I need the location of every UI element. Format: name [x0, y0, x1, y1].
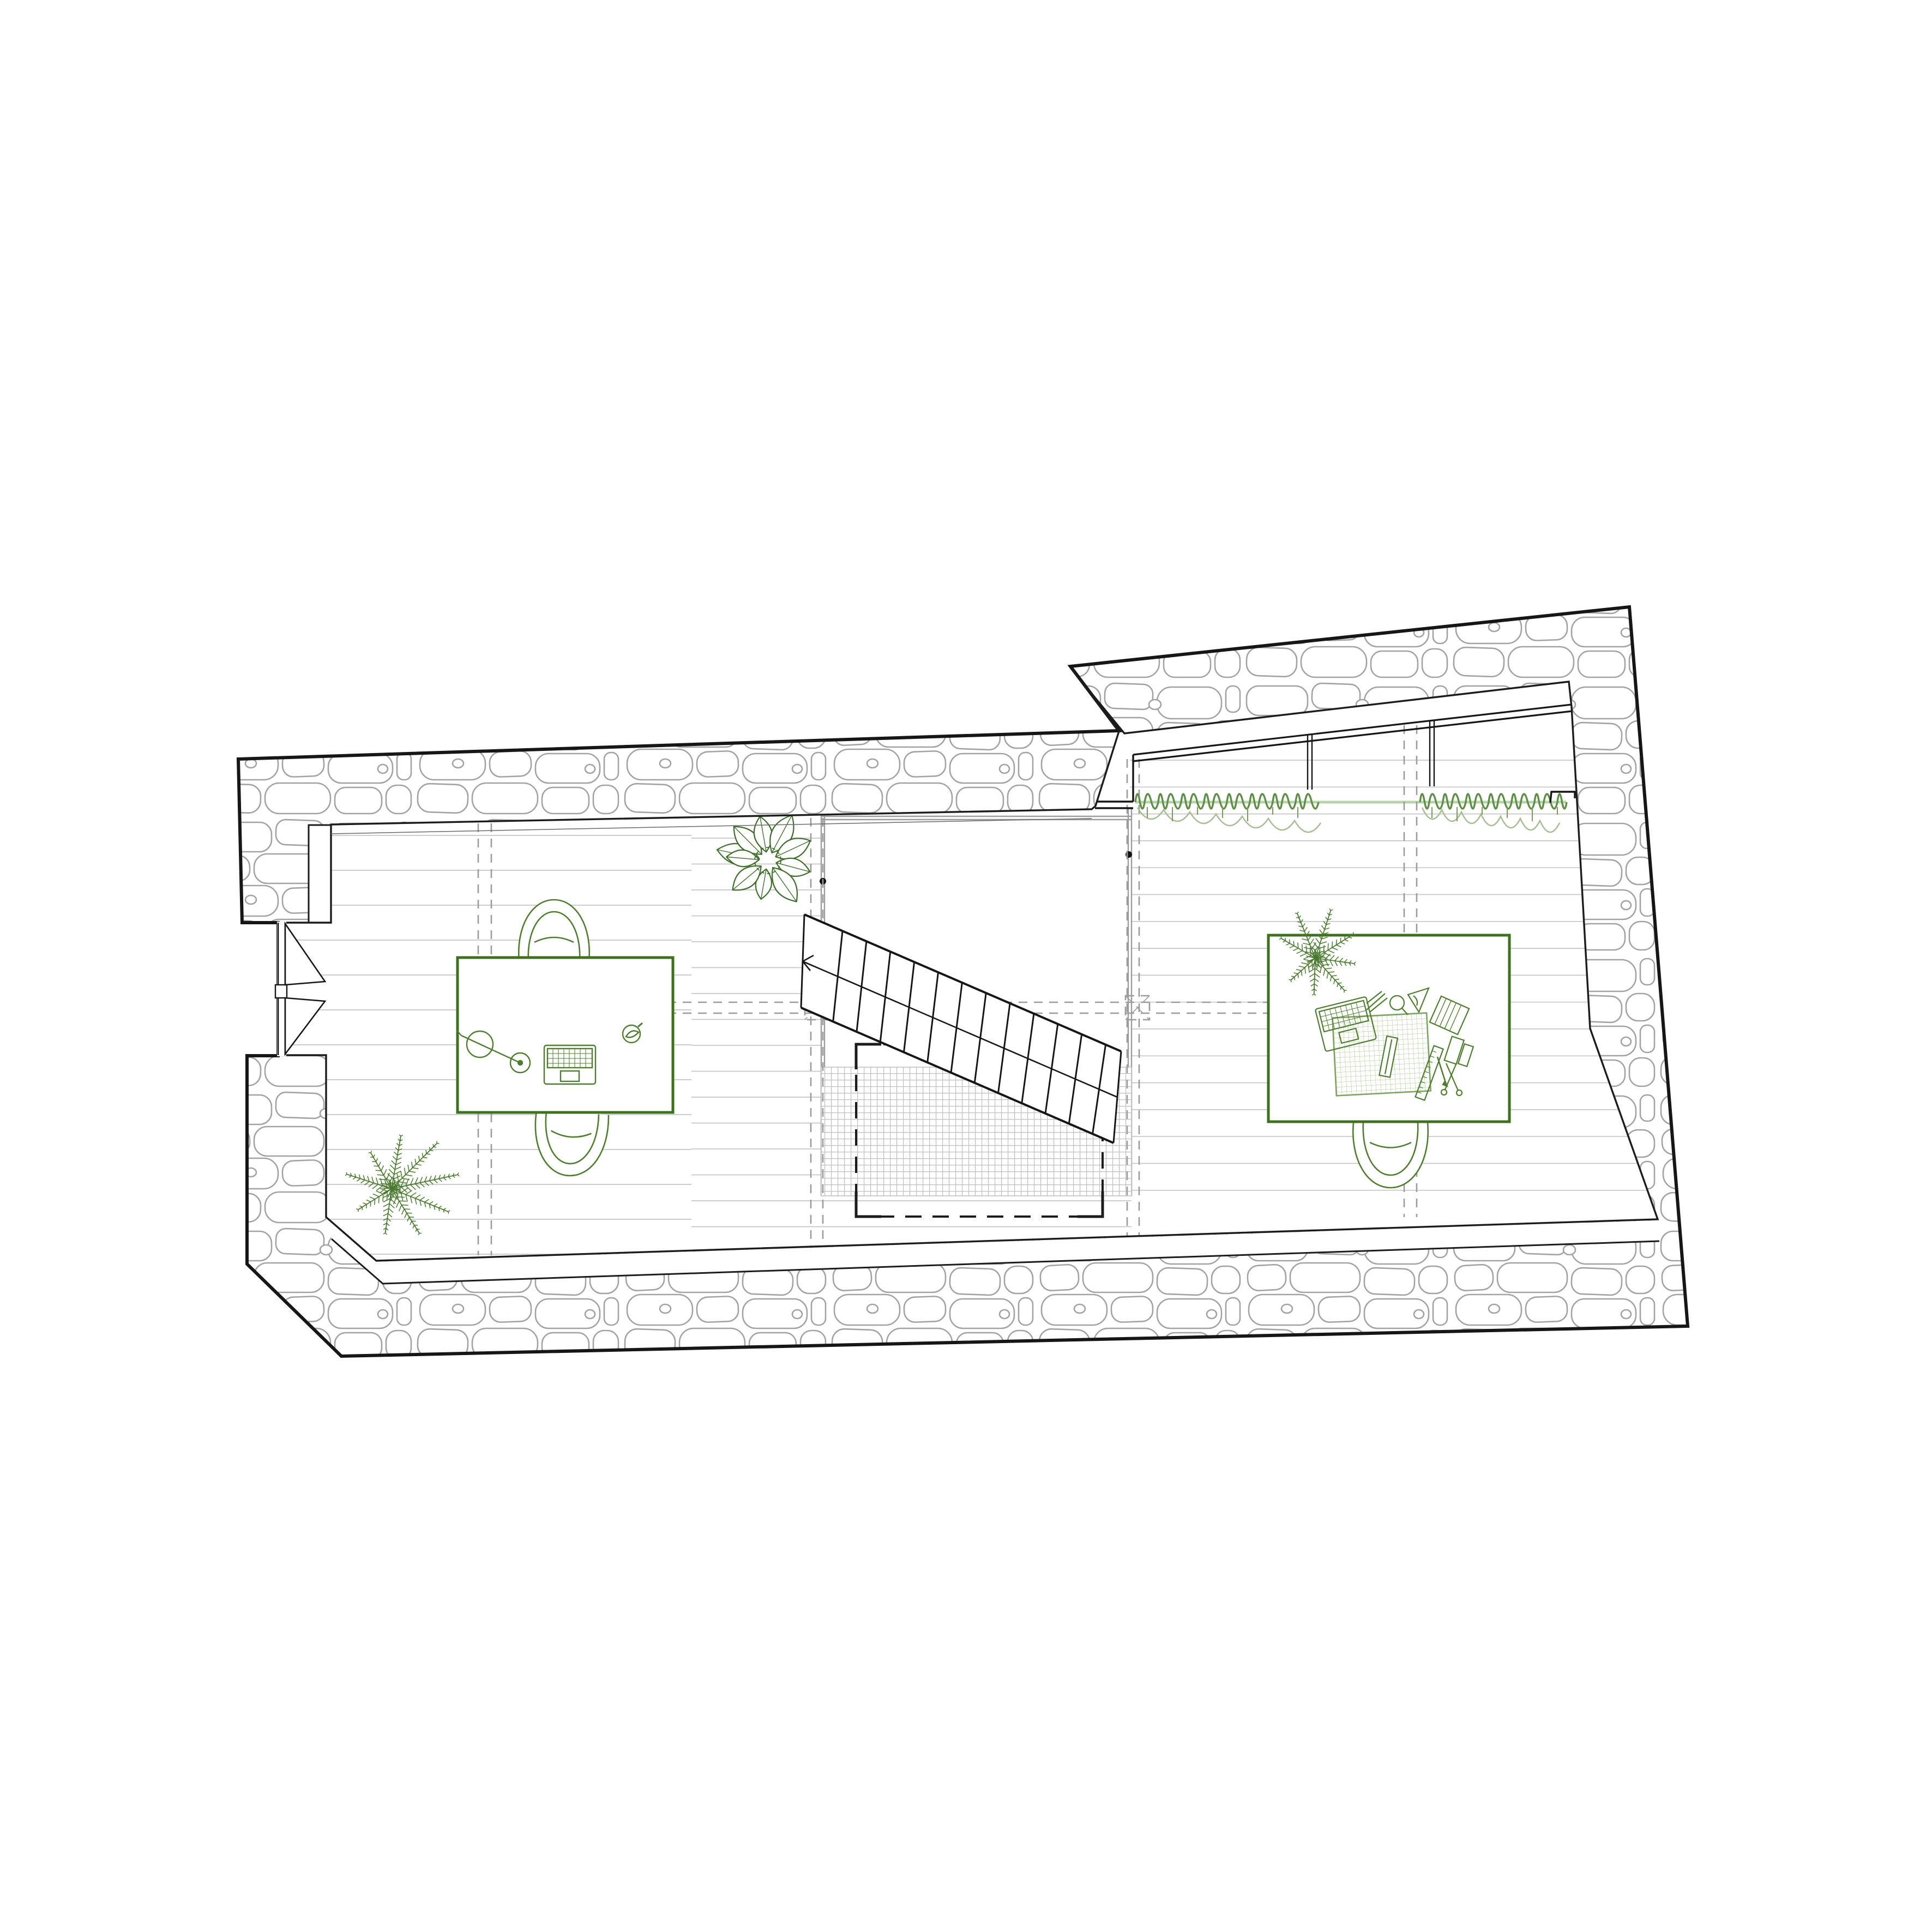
wall-pier	[309, 825, 331, 923]
cutting-mat-icon	[1332, 1013, 1430, 1096]
climbing-hedge	[1135, 794, 1567, 832]
window-leaf-swing	[285, 998, 325, 1054]
left-desk	[457, 958, 673, 1112]
chair	[519, 900, 589, 962]
floor-plan-drawing	[0, 0, 1932, 1932]
window-leaf-swing	[285, 924, 325, 985]
glazing-mullion	[1308, 720, 1434, 790]
monstera-plant	[717, 815, 810, 901]
casement-window	[275, 922, 325, 1056]
floor-plan-canvas	[0, 0, 1932, 1932]
chair	[1353, 1122, 1428, 1188]
window-mullion	[275, 985, 287, 998]
chair	[532, 1110, 609, 1178]
